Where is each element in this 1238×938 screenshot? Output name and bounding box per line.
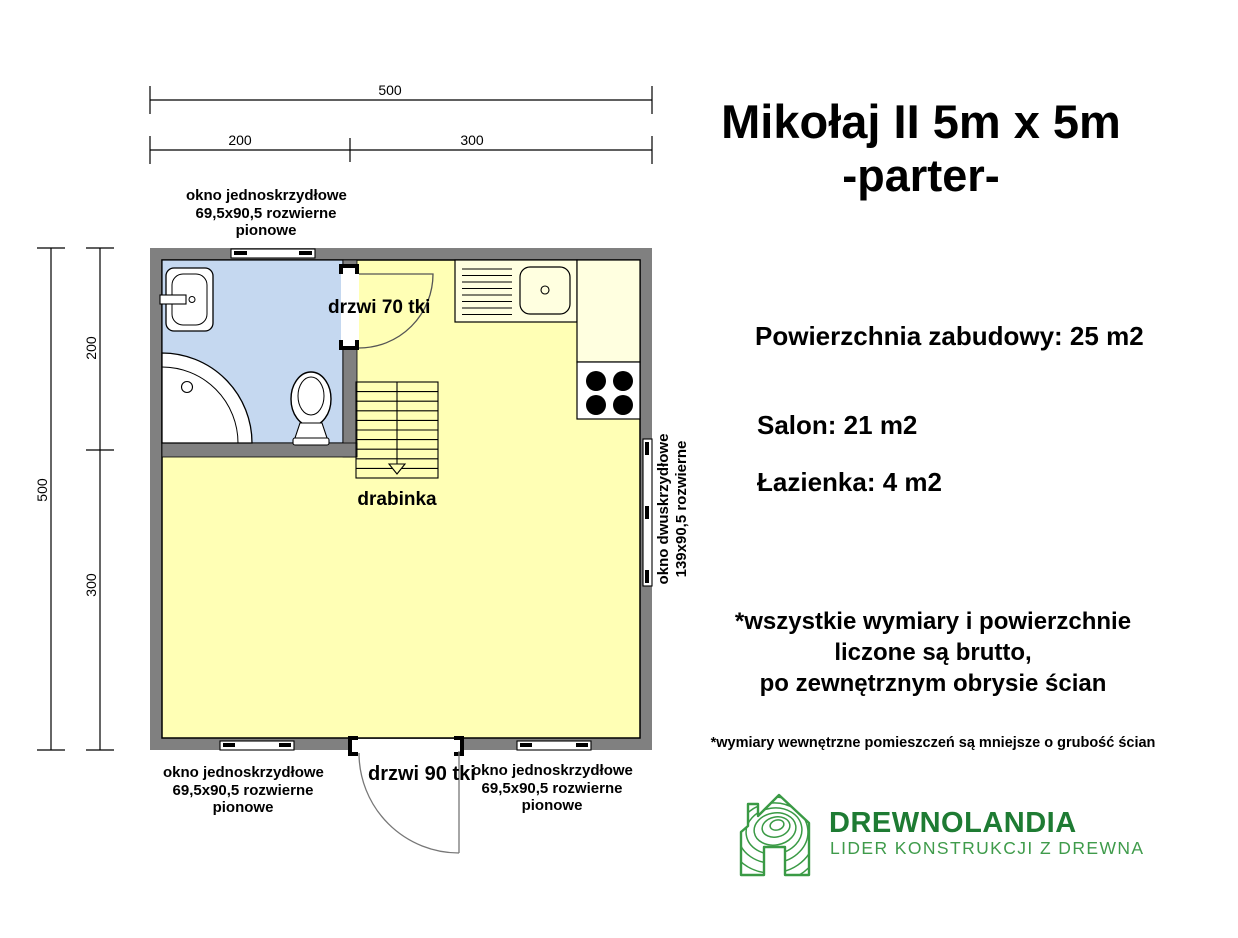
- stat-built-area: Powierzchnia zabudowy: 25 m2: [755, 321, 1144, 352]
- label-window-bottom-left: okno jednoskrzydłowe 69,5x90,5 rozwierne…: [163, 764, 323, 817]
- window-right-double: [643, 439, 652, 586]
- dim-top-total: 500: [360, 82, 420, 98]
- note-gross-dimensions: *wszystkie wymiary i powierzchnie liczon…: [663, 606, 1203, 699]
- page-subtitle: -parter-: [621, 150, 1221, 202]
- kitchen-counter-top: [455, 260, 577, 322]
- dim-top-left: 200: [210, 132, 270, 148]
- exterior-door-90: [348, 736, 464, 853]
- label-window-top: okno jednoskrzydłowe 69,5x90,5 rozwierne…: [186, 187, 346, 240]
- drewnolandia-logo: DREWNOLANDIA LIDER KONSTRUKCJI Z DREWNA: [735, 790, 1155, 890]
- floor-plan-page: 500 200 300 500 200 300 okno jednoskrzyd…: [0, 0, 1238, 938]
- window-top: [231, 249, 315, 258]
- drewnolandia-house-icon: [735, 790, 815, 880]
- stat-bathroom: Łazienka: 4 m2: [757, 467, 942, 498]
- label-door-70: drzwi 70 tki: [328, 297, 430, 319]
- stove: [577, 362, 640, 419]
- window-bottom-left: [220, 741, 294, 750]
- dim-left-total: 500: [34, 460, 50, 520]
- kitchen-counter-right: [577, 260, 640, 362]
- dim-left-top: 200: [83, 318, 99, 378]
- bathroom-sink: [160, 268, 213, 331]
- brand-name: DREWNOLANDIA: [829, 807, 1077, 840]
- dim-left-bottom: 300: [83, 555, 99, 615]
- note-internal-dimensions: *wymiary wewnętrzne pomieszczeń są mniej…: [663, 735, 1203, 751]
- brand-tagline: LIDER KONSTRUKCJI Z DREWNA: [830, 838, 1144, 859]
- label-ladder: drabinka: [356, 489, 438, 511]
- dim-top-right: 300: [442, 132, 502, 148]
- page-title: Mikołaj II 5m x 5m: [621, 94, 1221, 149]
- toilet: [291, 372, 331, 445]
- window-bottom-right: [517, 741, 591, 750]
- label-door-90: drzwi 90 tki: [368, 763, 476, 786]
- label-window-bottom-right: okno jednoskrzydłowe 69,5x90,5 rozwierne…: [472, 762, 632, 815]
- label-window-right: okno dwuskrzydłowe 139x90,5 rozwierne: [655, 429, 691, 589]
- stat-salon: Salon: 21 m2: [757, 410, 917, 441]
